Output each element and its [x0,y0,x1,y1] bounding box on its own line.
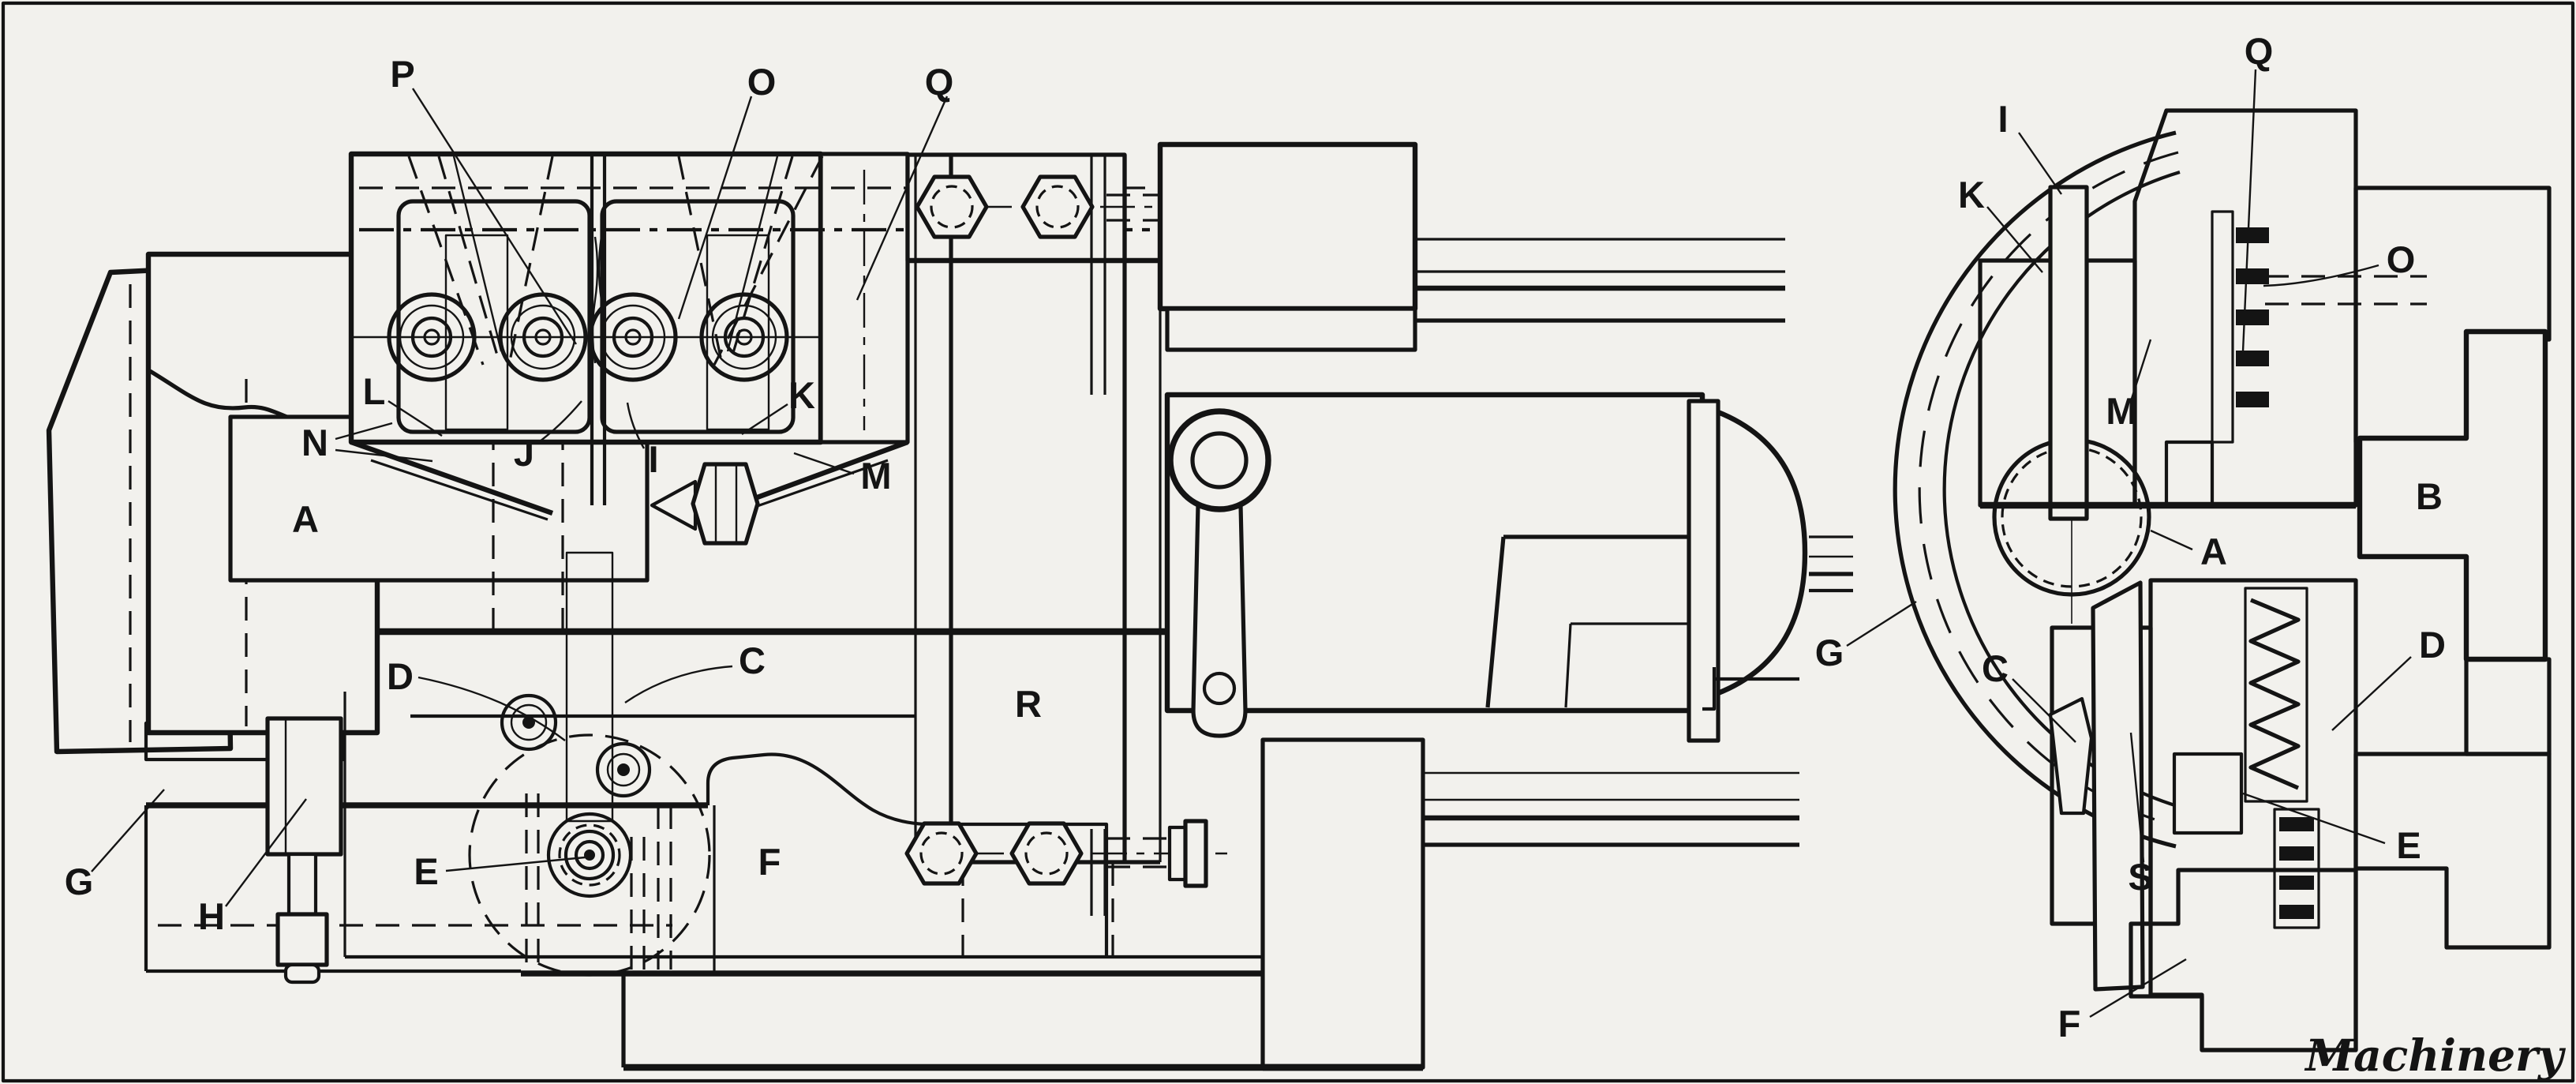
label-right-M: M [2106,390,2136,432]
label-left-R: R [1015,683,1042,725]
label-right-K: K [1958,174,1985,216]
slide-slab [1167,309,1415,350]
label-left-H: H [198,895,225,937]
screw-channel [2212,212,2233,442]
figure-page: P O Q L K N J I M A D C G H E F R [0,0,2576,1084]
rack-tooth [2236,351,2269,366]
rack-tooth [2279,876,2314,890]
label-right-I: I [1998,98,2008,140]
label-right-D: D [2419,624,2446,666]
bolt-collar [1170,827,1185,880]
rack-tooth [2279,846,2314,861]
rack-tooth [2236,268,2269,284]
label-left-P: P [390,53,414,95]
label-right-A: A [2200,531,2227,572]
label-left-J: J [514,432,534,474]
bolt-head [278,914,327,965]
bolt-head [1185,821,1206,886]
rack-tooth [2236,309,2269,325]
stop-bracket-H [268,718,341,854]
hex-nut [693,464,758,543]
label-left-O: O [747,61,777,103]
label-left-L: L [363,370,386,412]
label-right-C: C [1982,647,2009,689]
label-right-E: E [2396,824,2421,866]
label-left-K: K [788,374,815,416]
label-left-F: F [758,841,781,883]
label-left-E: E [414,850,438,892]
label-right-O: O [2387,238,2416,280]
label-right-F: F [2058,1003,2081,1045]
label-left-A: A [292,498,319,540]
wedge-bar-I [2050,187,2087,519]
caption-machinery: Machinery [2304,1030,2567,1081]
rack-tooth [2279,817,2314,831]
bolt-stem [289,854,316,914]
pin-window-E [2174,754,2241,833]
label-left-Q: Q [925,61,954,103]
label-right-S: S [2128,856,2152,898]
rack-tooth [2236,392,2269,407]
turret-slide-block [1160,144,1415,309]
label-left-G: G [65,861,94,902]
label-right-G: G [1815,632,1844,673]
rack-tooth [2279,905,2314,919]
label-right-B: B [2416,475,2443,517]
machinery-drawing: P O Q L K N J I M A D C G H E F R [0,0,2576,1084]
bolt-cap [286,965,319,982]
label-left-C: C [739,640,766,681]
label-left-I: I [648,438,658,480]
label-left-M: M [860,455,891,497]
bed-bracket [1263,740,1423,1067]
pocket-M [2166,442,2212,505]
label-left-N: N [301,422,328,463]
rack-tooth [2236,227,2269,243]
label-right-Q: Q [2245,30,2274,72]
label-left-D: D [387,655,414,697]
